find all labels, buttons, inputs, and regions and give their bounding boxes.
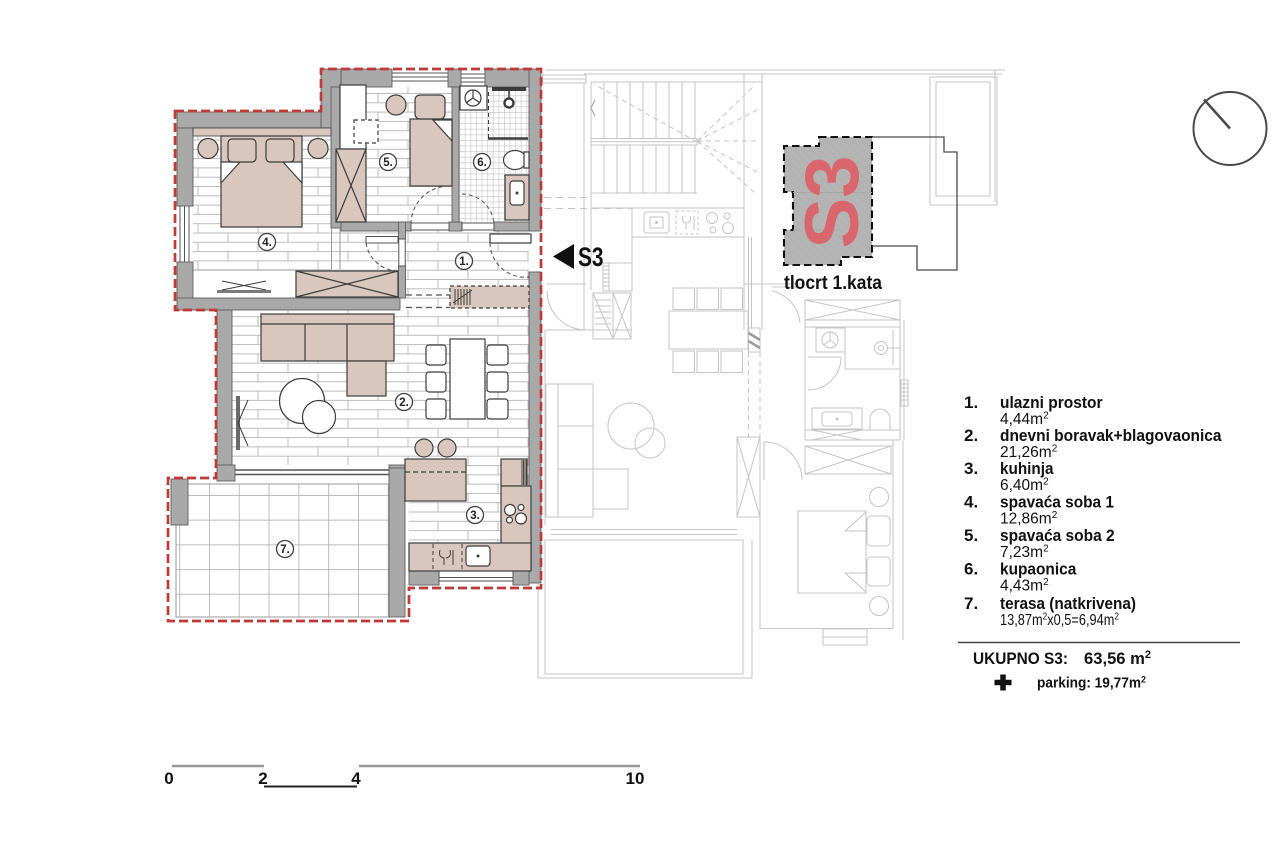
svg-text:3.: 3. [470, 510, 480, 522]
svg-text:kuhinja: kuhinja [1000, 459, 1054, 478]
svg-text:ulazni prostor: ulazni prostor [1000, 393, 1103, 412]
svg-text:kupaonica: kupaonica [1000, 560, 1077, 579]
svg-text:2.: 2. [964, 426, 978, 445]
svg-text:10: 10 [626, 769, 645, 788]
svg-text:S3: S3 [578, 242, 604, 272]
svg-text:7,23m2: 7,23m2 [1000, 544, 1049, 562]
svg-text:12,86m2: 12,86m2 [1000, 510, 1058, 528]
svg-text:3.: 3. [964, 459, 978, 478]
svg-text:spavaća soba 2: spavaća soba 2 [1000, 526, 1115, 545]
svg-text:63,56 m2: 63,56 m2 [1084, 649, 1151, 668]
svg-text:7.: 7. [280, 544, 290, 556]
svg-text:5.: 5. [383, 157, 393, 169]
svg-text:dnevni boravak+blagovaonica: dnevni boravak+blagovaonica [1000, 426, 1222, 445]
svg-text:6,40m2: 6,40m2 [1000, 477, 1049, 495]
svg-text:spavaća soba 1: spavaća soba 1 [1000, 493, 1114, 512]
svg-text:terasa (natkrivena): terasa (natkrivena) [1000, 594, 1136, 613]
svg-text:parking: 19,77m2: parking: 19,77m2 [1037, 675, 1146, 692]
svg-text:UKUPNO S3:: UKUPNO S3: [973, 649, 1068, 668]
svg-text:6.: 6. [964, 560, 978, 579]
svg-text:13,87m2x0,5=6,94m2: 13,87m2x0,5=6,94m2 [1000, 611, 1119, 629]
svg-text:4.: 4. [964, 493, 978, 512]
svg-text:21,26m2: 21,26m2 [1000, 443, 1058, 461]
svg-text:5.: 5. [964, 526, 978, 545]
svg-text:tlocrt 1.kata: tlocrt 1.kata [784, 272, 882, 294]
svg-text:4.: 4. [262, 237, 272, 249]
svg-text:0: 0 [164, 769, 173, 788]
svg-text:4: 4 [351, 769, 361, 788]
svg-text:1.: 1. [459, 256, 469, 268]
svg-text:4,44m2: 4,44m2 [1000, 410, 1049, 428]
svg-text:6.: 6. [477, 157, 487, 169]
svg-text:2.: 2. [399, 397, 409, 409]
svg-text:2: 2 [258, 769, 267, 788]
svg-text:S3: S3 [790, 156, 875, 249]
svg-text:4,43m2: 4,43m2 [1000, 577, 1049, 595]
svg-text:1.: 1. [964, 393, 978, 412]
svg-text:7.: 7. [964, 594, 978, 613]
